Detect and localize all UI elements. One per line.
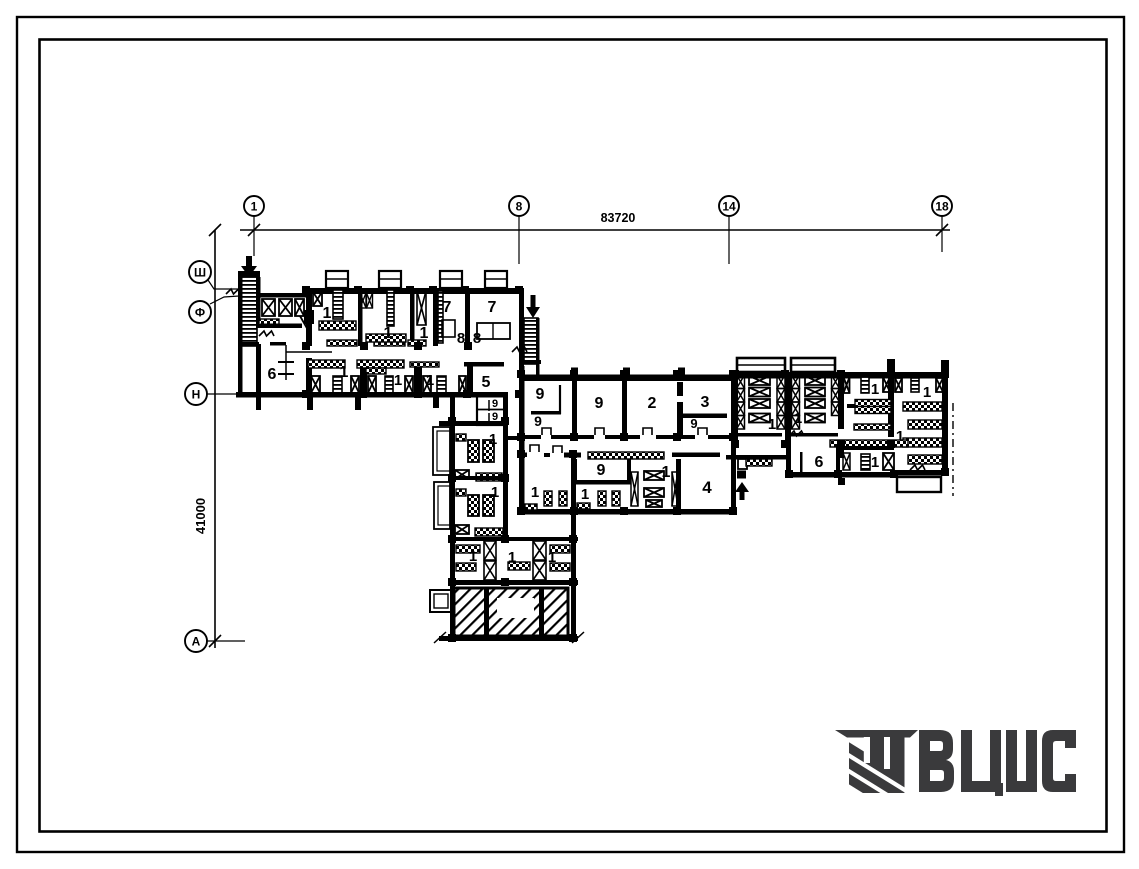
svg-text:1: 1 — [491, 484, 499, 501]
svg-text:4: 4 — [702, 478, 712, 497]
svg-text:1: 1 — [508, 549, 516, 566]
svg-text:9: 9 — [597, 462, 606, 479]
svg-text:1: 1 — [794, 410, 802, 427]
svg-text:Ф: Ф — [195, 305, 205, 319]
svg-text:7: 7 — [443, 299, 452, 316]
svg-text:8: 8 — [473, 330, 481, 347]
svg-text:1: 1 — [251, 199, 258, 213]
svg-text:9: 9 — [595, 395, 604, 412]
svg-text:1: 1 — [923, 384, 931, 401]
svg-text:5: 5 — [482, 374, 491, 391]
svg-text:41000: 41000 — [193, 498, 208, 534]
svg-text:2: 2 — [648, 395, 657, 412]
svg-text:1: 1 — [323, 305, 332, 322]
svg-text:1: 1 — [871, 454, 879, 471]
svg-text:1: 1 — [531, 484, 539, 501]
svg-text:7: 7 — [488, 299, 497, 316]
svg-text:1: 1 — [768, 416, 776, 433]
svg-text:83720: 83720 — [601, 211, 636, 225]
svg-text:1: 1 — [420, 325, 429, 342]
svg-text:8: 8 — [516, 199, 523, 213]
svg-text:1: 1 — [340, 364, 349, 381]
svg-text:3: 3 — [701, 394, 710, 411]
svg-text:1: 1 — [548, 549, 556, 566]
svg-text:1: 1 — [426, 372, 434, 389]
svg-text:9: 9 — [492, 398, 498, 410]
svg-text:1: 1 — [394, 372, 402, 389]
svg-text:А: А — [192, 634, 201, 648]
svg-text:1: 1 — [581, 486, 589, 503]
svg-text:9: 9 — [690, 416, 697, 431]
svg-text:9: 9 — [534, 413, 542, 429]
svg-text:9: 9 — [536, 386, 545, 403]
svg-text:8: 8 — [457, 330, 465, 347]
svg-text:6: 6 — [815, 454, 824, 471]
svg-text:1: 1 — [489, 431, 497, 448]
svg-text:1: 1 — [384, 325, 393, 342]
svg-text:1: 1 — [871, 381, 879, 398]
svg-text:Н: Н — [192, 387, 201, 401]
svg-text:6: 6 — [268, 366, 277, 383]
svg-text:18: 18 — [935, 199, 949, 213]
svg-text:1: 1 — [469, 548, 477, 565]
svg-text:Ш: Ш — [194, 265, 206, 279]
svg-text:1: 1 — [662, 464, 671, 481]
svg-text:14: 14 — [722, 199, 736, 213]
